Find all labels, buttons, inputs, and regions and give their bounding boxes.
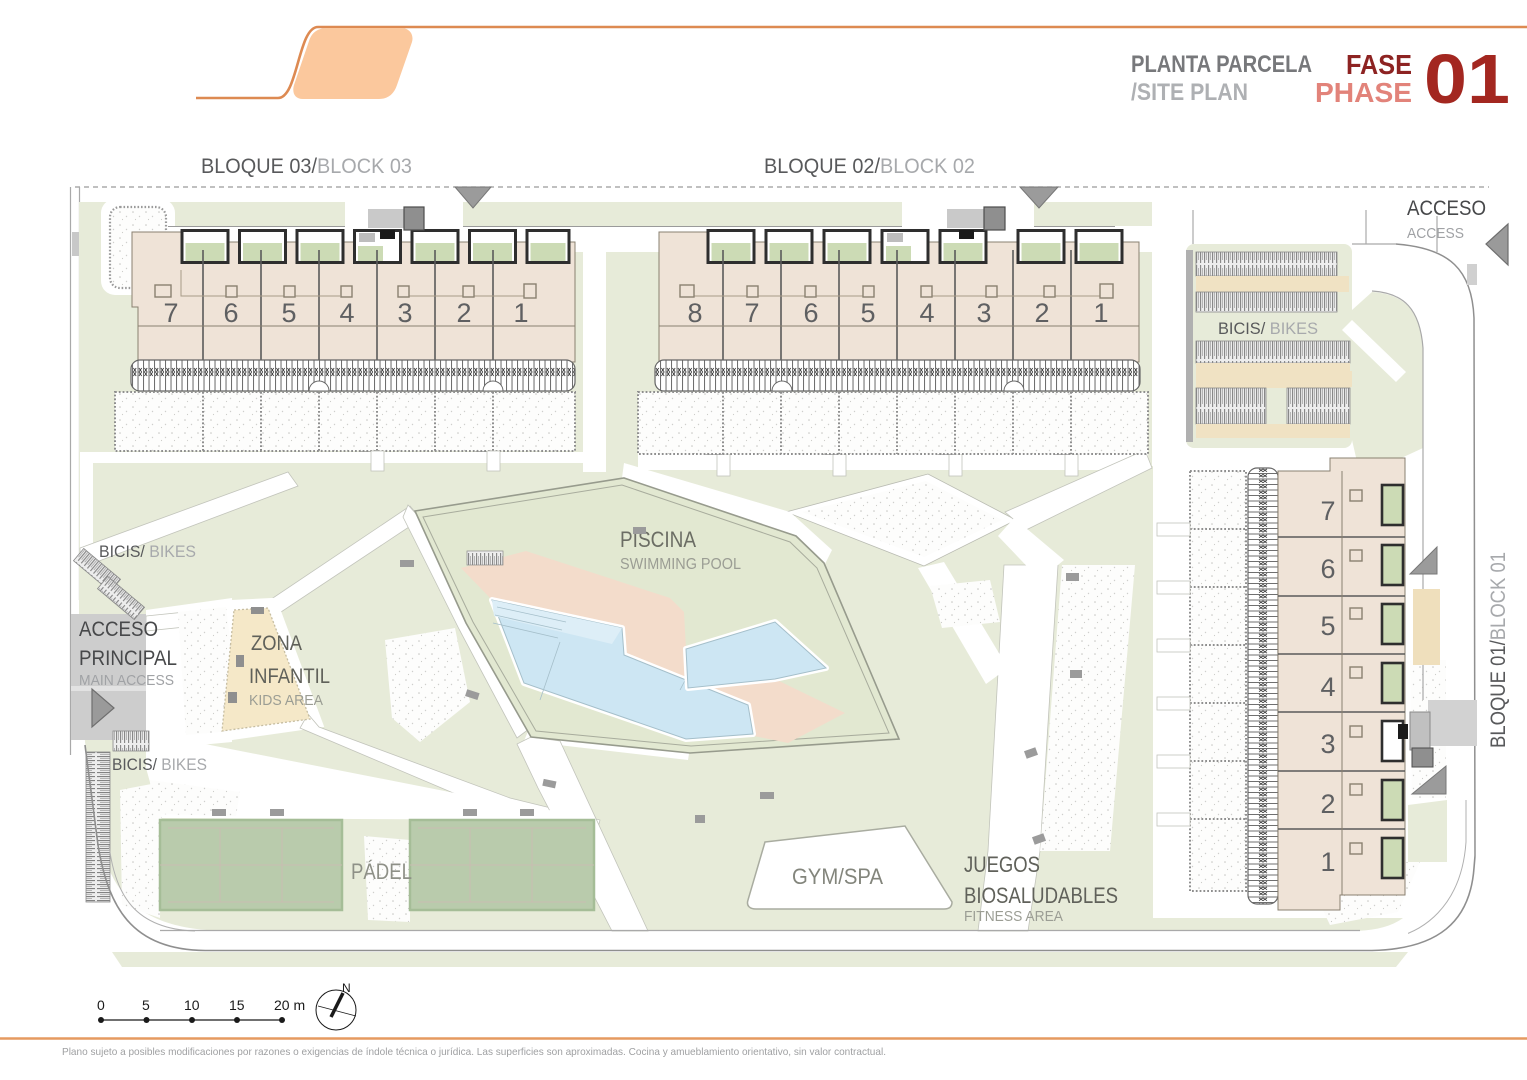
svg-text:GYM/SPA: GYM/SPA: [792, 864, 883, 889]
svg-text:5: 5: [142, 997, 150, 1013]
svg-text:6: 6: [223, 298, 238, 328]
svg-text:7: 7: [1320, 496, 1335, 526]
svg-text:1: 1: [1320, 847, 1335, 877]
svg-text:7: 7: [163, 298, 178, 328]
svg-text:BICIS/ BIKES: BICIS/ BIKES: [112, 755, 207, 774]
svg-text:PISCINA: PISCINA: [620, 527, 696, 552]
svg-text:/SITE PLAN: /SITE PLAN: [1131, 79, 1248, 106]
svg-text:3: 3: [397, 298, 412, 328]
svg-text:4: 4: [339, 298, 354, 328]
svg-text:2: 2: [456, 298, 471, 328]
svg-text:2: 2: [1034, 298, 1049, 328]
svg-text:BICIS/ BIKES: BICIS/ BIKES: [99, 542, 196, 561]
svg-text:PLANTA PARCELA: PLANTA PARCELA: [1131, 51, 1312, 78]
svg-text:3: 3: [1320, 729, 1335, 759]
svg-text:ACCESO: ACCESO: [79, 618, 158, 641]
svg-text:ZONA: ZONA: [251, 632, 302, 655]
svg-text:Plano sujeto a posibles modifi: Plano sujeto a posibles modificaciones p…: [62, 1046, 886, 1058]
svg-text:0: 0: [97, 997, 105, 1013]
svg-text:BICIS/ BIKES: BICIS/ BIKES: [1218, 319, 1318, 338]
svg-text:ACCESS: ACCESS: [1407, 225, 1464, 242]
svg-text:FASE: FASE: [1346, 49, 1412, 80]
svg-text:PRINCIPAL: PRINCIPAL: [79, 647, 177, 670]
svg-text:PHASE: PHASE: [1315, 77, 1412, 108]
svg-text:MAIN ACCESS: MAIN ACCESS: [79, 672, 174, 689]
svg-text:3: 3: [976, 298, 991, 328]
svg-text:BLOQUE 02/BLOCK 02: BLOQUE 02/BLOCK 02: [764, 155, 975, 178]
svg-text:PÁDEL: PÁDEL: [351, 859, 412, 884]
svg-text:BIOSALUDABLES: BIOSALUDABLES: [964, 883, 1118, 908]
svg-text:BLOQUE 03/BLOCK 03: BLOQUE 03/BLOCK 03: [201, 155, 412, 178]
svg-text:4: 4: [1320, 672, 1335, 702]
svg-text:KIDS AREA: KIDS AREA: [249, 692, 323, 709]
svg-text:1: 1: [513, 298, 528, 328]
svg-text:4: 4: [919, 298, 934, 328]
svg-text:01: 01: [1424, 40, 1510, 118]
svg-text:BLOQUE 01/BLOCK 01: BLOQUE 01/BLOCK 01: [1487, 552, 1510, 748]
svg-text:1: 1: [1093, 298, 1108, 328]
svg-text:JUEGOS: JUEGOS: [964, 852, 1040, 877]
svg-text:SWIMMING POOL: SWIMMING POOL: [620, 556, 741, 573]
svg-text:7: 7: [744, 298, 759, 328]
svg-text:FITNESS AREA: FITNESS AREA: [964, 908, 1063, 925]
svg-text:N: N: [342, 981, 351, 995]
svg-text:8: 8: [687, 298, 702, 328]
svg-text:ACCESO: ACCESO: [1407, 197, 1486, 220]
svg-text:10: 10: [184, 997, 200, 1013]
svg-text:6: 6: [803, 298, 818, 328]
svg-text:INFANTIL: INFANTIL: [249, 665, 330, 688]
svg-text:5: 5: [860, 298, 875, 328]
svg-text:6: 6: [1320, 554, 1335, 584]
svg-text:20 m: 20 m: [274, 997, 305, 1013]
svg-text:5: 5: [281, 298, 296, 328]
svg-text:2: 2: [1320, 789, 1335, 819]
svg-text:15: 15: [229, 997, 245, 1013]
svg-text:5: 5: [1320, 611, 1335, 641]
